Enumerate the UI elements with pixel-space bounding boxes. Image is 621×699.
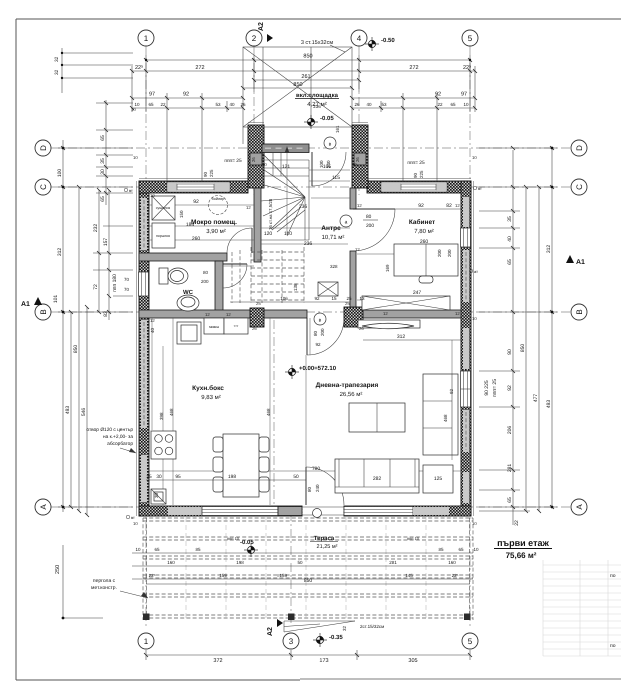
svg-text:26,56 м²: 26,56 м² [340, 391, 363, 398]
svg-text:206: 206 [507, 426, 513, 435]
svg-text:398: 398 [159, 412, 164, 420]
svg-text:328: 328 [330, 264, 338, 269]
svg-text:200: 200 [447, 249, 452, 257]
svg-text:65: 65 [100, 196, 106, 202]
svg-text:50: 50 [293, 474, 299, 480]
svg-text:A: A [39, 504, 48, 510]
svg-text:-0.50: -0.50 [381, 37, 395, 44]
svg-text:85: 85 [195, 547, 201, 552]
svg-text:10: 10 [472, 316, 477, 321]
svg-text:по: по [610, 643, 616, 649]
svg-text:5: 5 [468, 34, 473, 43]
svg-text:198: 198 [236, 560, 244, 565]
svg-text:мет.констр.: мет.констр. [91, 585, 117, 591]
svg-text:WC: WC [183, 289, 194, 296]
svg-text:26: 26 [359, 326, 364, 331]
svg-text:10: 10 [133, 521, 138, 526]
svg-text:80: 80 [203, 270, 209, 275]
svg-text:72: 72 [93, 284, 99, 290]
svg-text:бойлер: бойлер [212, 197, 225, 201]
svg-text:Тераса: Тераса [314, 535, 335, 542]
svg-text:C: C [575, 184, 584, 190]
svg-text:305: 305 [408, 658, 417, 664]
svg-text:25: 25 [345, 301, 350, 306]
svg-text:30: 30 [156, 474, 162, 480]
svg-text:Антре: Антре [321, 225, 341, 232]
svg-text:80: 80 [307, 486, 312, 492]
svg-text:82: 82 [446, 203, 452, 209]
svg-text:40: 40 [150, 327, 155, 333]
svg-text:26: 26 [240, 102, 246, 107]
svg-text:12: 12 [246, 205, 251, 210]
svg-text:468: 468 [443, 414, 448, 422]
svg-text:Кабинет: Кабинет [409, 219, 435, 226]
svg-text:80: 80 [313, 330, 318, 336]
svg-text:B: B [575, 309, 584, 314]
svg-text:200: 200 [437, 249, 442, 257]
svg-text:35: 35 [507, 216, 513, 222]
svg-text:D: D [575, 145, 584, 151]
svg-text:A2: A2 [258, 22, 265, 31]
svg-text:12: 12 [357, 203, 362, 208]
svg-text:4: 4 [357, 34, 362, 43]
svg-text:в: в [319, 318, 322, 324]
svg-text:225: 225 [149, 573, 156, 578]
svg-text:3,90 м²: 3,90 м² [206, 228, 225, 235]
svg-text:200: 200 [366, 223, 374, 229]
svg-text:250: 250 [55, 565, 61, 574]
svg-text:50: 50 [297, 560, 303, 565]
svg-text:850: 850 [304, 578, 313, 584]
svg-text:10: 10 [472, 521, 477, 526]
svg-text:92: 92 [193, 199, 199, 205]
svg-text:ппп 180: ппп 180 [112, 274, 118, 292]
svg-text:90: 90 [507, 349, 513, 355]
svg-text:32: 32 [342, 625, 347, 631]
svg-text:-0.05: -0.05 [240, 539, 254, 546]
svg-text:272: 272 [409, 65, 418, 71]
svg-text:145: 145 [405, 573, 413, 578]
svg-text:26: 26 [354, 102, 360, 107]
svg-text:92: 92 [314, 296, 320, 301]
svg-text:493: 493 [65, 406, 71, 415]
svg-text:200: 200 [201, 279, 209, 284]
svg-text:120: 120 [264, 231, 273, 237]
svg-text:477: 477 [533, 394, 539, 403]
svg-text:260: 260 [192, 236, 201, 242]
svg-text:546: 546 [81, 408, 87, 417]
svg-text:32: 32 [54, 69, 60, 75]
svg-text:240: 240 [315, 484, 320, 492]
svg-text:225: 225 [452, 573, 459, 578]
svg-text:30: 30 [154, 492, 159, 498]
svg-text:12: 12 [150, 318, 155, 323]
svg-text:105: 105 [323, 164, 332, 170]
svg-text:200: 200 [320, 328, 325, 336]
svg-text:пералня: пералня [156, 234, 170, 238]
svg-text:абсорбатор: абсорбатор [107, 441, 133, 447]
svg-text:Мокро помещ.: Мокро помещ. [191, 219, 237, 226]
svg-text:3: 3 [289, 637, 294, 646]
svg-text:65: 65 [458, 547, 464, 552]
svg-text:10: 10 [463, 102, 469, 107]
svg-text:9,83 м²: 9,83 м² [201, 394, 220, 401]
svg-text:850: 850 [293, 82, 302, 88]
svg-text:25: 25 [256, 301, 261, 306]
svg-text:2: 2 [252, 34, 257, 43]
svg-text:1: 1 [144, 34, 149, 43]
svg-text:***: *** [234, 324, 239, 329]
svg-text:850: 850 [73, 345, 79, 354]
svg-text:ппп= 25: ппп= 25 [224, 158, 242, 164]
svg-text:Дневна-трапезария: Дневна-трапезария [316, 382, 379, 389]
svg-text:80: 80 [366, 214, 372, 220]
svg-text:65: 65 [100, 135, 106, 141]
svg-text:сушилня: сушилня [156, 206, 171, 210]
svg-text:40: 40 [366, 102, 372, 107]
svg-text:281: 281 [507, 464, 513, 473]
svg-text:85: 85 [438, 547, 444, 552]
svg-text:13: 13 [359, 296, 365, 301]
svg-text:92: 92 [315, 342, 321, 347]
svg-text:12: 12 [455, 203, 460, 208]
svg-text:70: 70 [124, 277, 130, 282]
svg-text:236: 236 [299, 204, 308, 210]
svg-text:92: 92 [418, 203, 424, 209]
svg-text:850: 850 [520, 344, 526, 353]
svg-text:150: 150 [179, 210, 184, 218]
svg-text:110: 110 [284, 231, 292, 237]
svg-text:225: 225 [135, 65, 143, 72]
svg-text:D: D [39, 145, 48, 151]
svg-text:5: 5 [468, 637, 473, 646]
svg-text:468: 468 [266, 408, 271, 416]
svg-text:95: 95 [175, 474, 181, 480]
svg-text:21,25 м²: 21,25 м² [317, 544, 338, 550]
svg-text:A1: A1 [576, 259, 585, 266]
svg-text:26: 26 [355, 157, 360, 162]
svg-text:2ст.15/32см: 2ст.15/32см [360, 624, 384, 629]
svg-text:53: 53 [381, 102, 387, 107]
svg-text:10: 10 [472, 155, 477, 160]
svg-text:115: 115 [332, 175, 340, 181]
svg-text:ппп= 25: ппп= 25 [407, 160, 425, 166]
svg-text:25: 25 [146, 474, 152, 480]
svg-text:101: 101 [53, 295, 59, 304]
svg-text:15: 15 [331, 296, 337, 301]
svg-text:65: 65 [507, 497, 513, 503]
svg-text:+0.00=572.10: +0.00=572.10 [299, 365, 337, 372]
svg-text:121: 121 [282, 164, 291, 170]
svg-text:10: 10 [473, 547, 479, 552]
svg-text:92: 92 [183, 92, 189, 98]
svg-text:232: 232 [93, 224, 99, 233]
svg-text:236: 236 [304, 241, 313, 247]
svg-text:780: 780 [312, 466, 320, 472]
svg-text:7,80 м²: 7,80 м² [414, 228, 433, 235]
svg-text:A: A [575, 504, 584, 510]
svg-text:мивка: мивка [209, 325, 219, 329]
svg-text:10: 10 [262, 162, 267, 167]
svg-text:97: 97 [149, 92, 155, 98]
svg-text:10: 10 [133, 155, 138, 160]
svg-text:ппп 10: ппп 10 [407, 536, 420, 541]
svg-text:вт: вт [131, 515, 135, 520]
svg-text:247: 247 [413, 290, 422, 296]
svg-text:75,66 м²: 75,66 м² [506, 551, 537, 560]
svg-text:65: 65 [450, 102, 456, 107]
svg-text:159: 159 [219, 573, 227, 578]
svg-text:281: 281 [389, 560, 397, 565]
svg-text:10: 10 [150, 193, 155, 198]
svg-text:вкл.площадка: вкл.площадка [296, 93, 339, 99]
svg-text:12: 12 [355, 247, 360, 252]
svg-text:225: 225 [209, 169, 214, 177]
svg-text:260: 260 [420, 239, 429, 245]
svg-text:22: 22 [160, 102, 166, 107]
svg-text:35: 35 [100, 158, 106, 164]
svg-text:а: а [345, 220, 348, 226]
svg-text:493: 493 [546, 400, 552, 409]
svg-text:ппп= 25: ппп= 25 [492, 379, 498, 397]
svg-text:92: 92 [435, 92, 441, 98]
svg-text:65: 65 [507, 259, 513, 265]
svg-text:468: 468 [169, 408, 174, 416]
svg-text:90: 90 [413, 172, 418, 178]
svg-text:92: 92 [449, 388, 454, 394]
svg-text:53: 53 [215, 102, 221, 107]
svg-text:40: 40 [507, 236, 513, 242]
svg-text:-0.35: -0.35 [329, 634, 343, 641]
svg-text:106: 106 [280, 296, 288, 301]
svg-text:12: 12 [383, 311, 388, 316]
svg-text:65: 65 [154, 547, 160, 552]
svg-text:вт: вт [129, 188, 133, 193]
svg-text:372: 372 [213, 658, 222, 664]
svg-text:161: 161 [335, 125, 340, 133]
svg-text:на к.+2,00- за: на к.+2,00- за [103, 434, 133, 440]
svg-text:отвор Ø120 с център: отвор Ø120 с център [86, 427, 133, 433]
svg-text:198: 198 [228, 474, 236, 480]
svg-text:32: 32 [54, 56, 60, 62]
svg-text:B: B [39, 309, 48, 314]
svg-text:97: 97 [461, 92, 467, 98]
svg-text:12: 12 [226, 312, 231, 317]
svg-text:ппп 10: ппп 10 [227, 536, 240, 541]
svg-text:Кухн.бокс: Кухн.бокс [192, 385, 224, 392]
svg-text:по: по [610, 573, 616, 579]
svg-text:90 225: 90 225 [484, 380, 490, 396]
svg-text:125: 125 [434, 476, 443, 482]
svg-text:A2: A2 [267, 627, 274, 636]
svg-text:4,27 м²: 4,27 м² [307, 101, 326, 108]
svg-text:1: 1 [144, 637, 149, 646]
svg-text:157: 157 [103, 238, 109, 247]
svg-text:10,71 м²: 10,71 м² [322, 234, 345, 241]
svg-text:30: 30 [100, 169, 106, 175]
svg-text:=159: =159 [277, 573, 288, 578]
svg-text:83: 83 [103, 311, 109, 317]
svg-text:92: 92 [507, 385, 513, 391]
svg-text:A1: A1 [21, 301, 30, 308]
svg-text:22: 22 [514, 520, 520, 526]
svg-text:312: 312 [397, 334, 406, 340]
svg-text:ат: ат [474, 269, 478, 274]
svg-text:вт: вт [478, 186, 482, 191]
svg-text:12: 12 [455, 311, 460, 316]
svg-text:100: 100 [57, 169, 63, 178]
svg-text:-0.05: -0.05 [320, 115, 334, 122]
svg-text:160: 160 [448, 560, 456, 565]
svg-text:22: 22 [437, 102, 443, 107]
svg-text:282: 282 [373, 476, 382, 482]
svg-text:12: 12 [205, 312, 210, 317]
svg-text:261: 261 [301, 74, 310, 80]
svg-text:850: 850 [303, 54, 312, 60]
svg-text:3 ст.15x32см: 3 ст.15x32см [301, 40, 334, 46]
svg-text:10: 10 [135, 547, 141, 552]
svg-text:10: 10 [131, 107, 136, 112]
svg-text:312: 312 [57, 248, 63, 257]
svg-text:40: 40 [229, 102, 235, 107]
svg-text:272: 272 [195, 65, 204, 71]
svg-text:184: 184 [186, 222, 195, 228]
svg-text:26: 26 [252, 326, 257, 331]
svg-text:90: 90 [203, 171, 208, 177]
svg-text:първи етаж: първи етаж [497, 538, 549, 548]
svg-text:в: в [329, 142, 332, 148]
svg-text:138: 138 [293, 283, 298, 291]
svg-text:225: 225 [419, 170, 424, 178]
svg-text:C: C [39, 184, 48, 190]
svg-text:312: 312 [546, 245, 552, 254]
svg-text:70: 70 [124, 287, 130, 292]
svg-text:пергола с: пергола с [93, 578, 116, 584]
svg-text:65: 65 [148, 102, 154, 107]
svg-text:16 ст.на 17,5/28: 16 ст.на 17,5/28 [268, 198, 273, 230]
svg-text:169: 169 [385, 264, 390, 272]
svg-text:173: 173 [319, 658, 328, 664]
svg-text:26: 26 [251, 157, 256, 162]
svg-text:160: 160 [167, 560, 175, 565]
